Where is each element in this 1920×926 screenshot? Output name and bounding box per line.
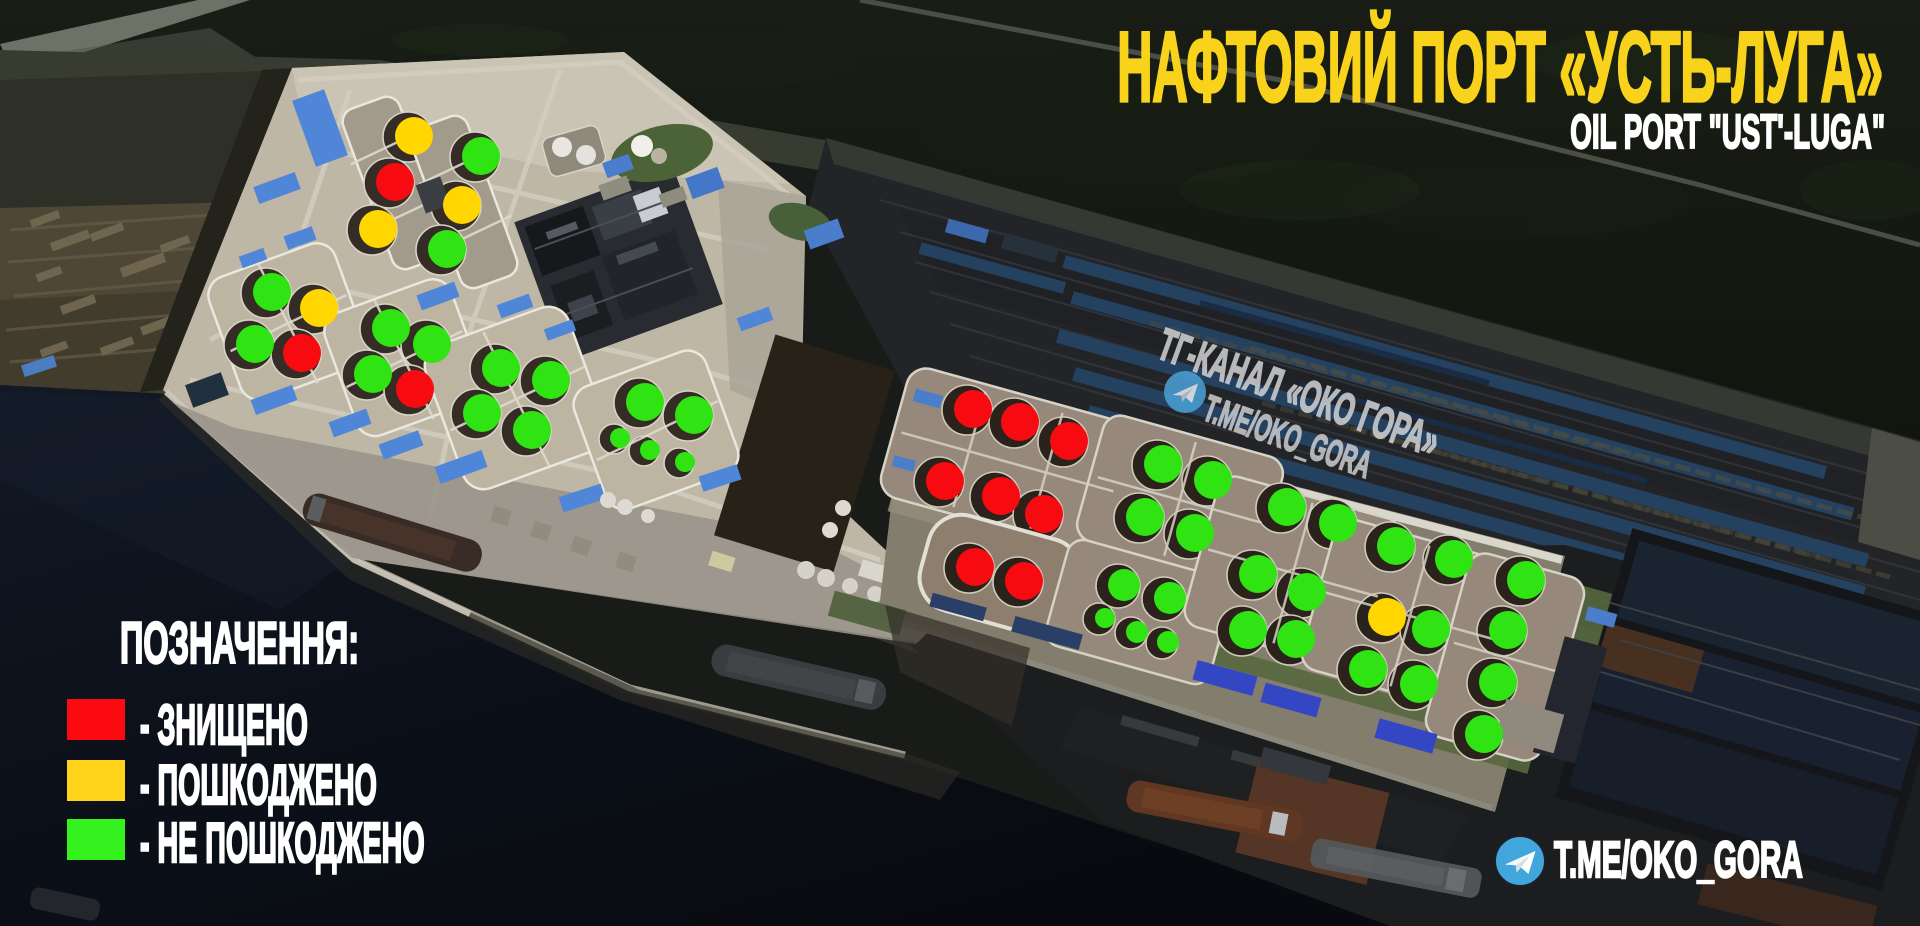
svg-text:- ЗНИЩЕНО: - ЗНИЩЕНО <box>140 692 308 756</box>
svg-text:T.ME/OKO_GORA: T.ME/OKO_GORA <box>1554 831 1803 888</box>
svg-text:ПОЗНАЧЕННЯ:: ПОЗНАЧЕННЯ: <box>120 610 359 675</box>
svg-text:- ПОШКОДЖЕНО: - ПОШКОДЖЕНО <box>140 752 377 816</box>
svg-text:- НЕ ПОШКОДЖЕНО: - НЕ ПОШКОДЖЕНО <box>140 810 425 874</box>
svg-text:OIL PORT "UST'-LUGA": OIL PORT "UST'-LUGA" <box>1570 106 1885 159</box>
